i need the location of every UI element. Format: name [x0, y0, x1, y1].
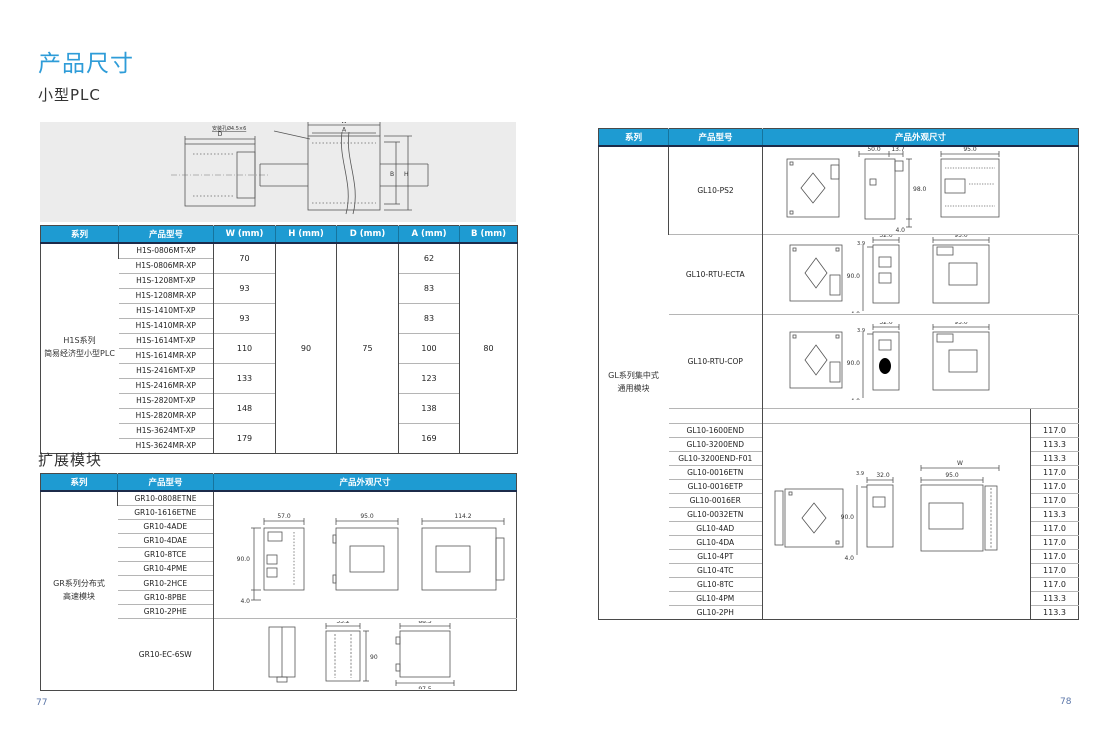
model-cell: H1S-0806MT-XP [119, 243, 214, 258]
value-cell: 90 [276, 243, 337, 453]
empty-cell [669, 408, 763, 423]
svg-text:50.0: 50.0 [867, 147, 881, 153]
column-header: W (mm) [214, 226, 276, 244]
column-header: 系列 [41, 474, 118, 492]
svg-text:3.9: 3.9 [857, 241, 865, 247]
dim-label-d: D [218, 131, 223, 138]
model-cell: GL10-PS2 [669, 146, 763, 234]
model-cell: GL10-0016ER [669, 493, 763, 507]
svg-text:114.2: 114.2 [454, 513, 471, 520]
svg-text:4.0: 4.0 [850, 398, 860, 400]
svg-text:13.7: 13.7 [891, 147, 905, 153]
catalog-page: { "page": { "title": "产品尺寸", "section_sm… [0, 0, 1107, 744]
value-cell: 117.0 [1031, 563, 1079, 577]
value-cell: 117.0 [1031, 465, 1079, 479]
svg-text:4.0: 4.0 [240, 598, 250, 605]
model-cell: H1S-2820MT-XP [119, 393, 214, 408]
gl-common-module-drawing: 3.9 32.0 90.0 4.0 W [769, 437, 1025, 605]
page-number-right: 78 [1060, 697, 1071, 707]
value-cell: 138 [399, 393, 460, 423]
column-header: 产品外观尺寸 [214, 474, 517, 492]
model-cell: H1S-1410MT-XP [119, 303, 214, 318]
svg-text:57.0: 57.0 [277, 513, 291, 520]
svg-text:32.0: 32.0 [876, 472, 890, 479]
model-cell: H1S-3624MR-XP [119, 438, 214, 453]
svg-text:4.0: 4.0 [850, 311, 860, 313]
section-title-small-plc: 小型PLC [38, 84, 101, 105]
plc-dimension-drawing: D W A B H [40, 122, 516, 222]
model-cell: GR10-4ADE [118, 519, 214, 533]
value-cell: 133 [214, 363, 276, 393]
model-cell: H1S-2416MT-XP [119, 363, 214, 378]
w-column-header: W (mm) [1031, 408, 1079, 423]
svg-text:4.0: 4.0 [895, 227, 905, 233]
svg-text:95.0: 95.0 [945, 472, 959, 479]
svg-text:4.0: 4.0 [844, 555, 854, 562]
svg-text:95.0: 95.0 [360, 513, 374, 520]
svg-text:W: W [957, 460, 963, 467]
value-cell: 113.3 [1031, 507, 1079, 521]
value-cell: 117.0 [1031, 577, 1079, 591]
gl-module-table: 系列 产品型号 产品外观尺寸 GL系列集中式通用模块 GL10-PS2 [598, 128, 1079, 620]
model-cell: GR10-2HCE [118, 576, 214, 590]
value-cell: 80 [460, 243, 518, 453]
model-cell: H1S-3624MT-XP [119, 423, 214, 438]
gr-switch-drawing: 53.2 90 88.5 [214, 621, 516, 689]
table-row: H1S系列简易经济型小型PLC H1S-0806MT-XP 70 90 75 6… [41, 243, 518, 258]
model-cell: GR10-0808ETNE [118, 491, 214, 505]
svg-text:90.0: 90.0 [237, 556, 251, 563]
model-cell: GL10-2PH [669, 605, 763, 619]
column-header: D (mm) [337, 226, 399, 244]
value-cell: 148 [214, 393, 276, 423]
value-cell: 117.0 [1031, 479, 1079, 493]
plc-dimensions-table: 系列 产品型号 W (mm) H (mm) D (mm) A (mm) B (m… [40, 225, 518, 454]
value-cell: 117.0 [1031, 549, 1079, 563]
model-cell: GL10-4AD [669, 521, 763, 535]
table-header-row: 系列 产品型号 W (mm) H (mm) D (mm) A (mm) B (m… [41, 226, 518, 244]
svg-text:3.9: 3.9 [856, 471, 864, 477]
column-header: H (mm) [276, 226, 337, 244]
value-cell: 179 [214, 423, 276, 453]
table-header-row: 系列 产品型号 产品外观尺寸 [599, 129, 1079, 147]
model-cell: GR10-8TCE [118, 548, 214, 562]
model-cell: H1S-1410MR-XP [119, 318, 214, 333]
value-cell: 100 [399, 333, 460, 363]
value-cell: 117.0 [1031, 423, 1079, 437]
model-cell: GR10-EC-6SW [118, 619, 214, 691]
model-cell: GL10-4PT [669, 549, 763, 563]
value-cell: 117.0 [1031, 521, 1079, 535]
svg-text:97.5: 97.5 [418, 686, 432, 689]
value-cell: 113.3 [1031, 605, 1079, 619]
value-cell: 93 [214, 303, 276, 333]
model-cell: GL10-4TC [669, 563, 763, 577]
model-cell: GR10-4PME [118, 562, 214, 576]
model-cell: GR10-1616ETNE [118, 505, 214, 519]
dim-label-b: B [390, 171, 394, 178]
model-cell: GL10-3200END-F01 [669, 451, 763, 465]
table-row: GL系列集中式通用模块 GL10-PS2 50.0 13.7 [599, 146, 1079, 234]
model-cell: GL10-4PM [669, 591, 763, 605]
model-cell: H1S-1614MR-XP [119, 348, 214, 363]
svg-text:88.5: 88.5 [418, 621, 432, 625]
model-cell: GL10-3200END [669, 437, 763, 451]
svg-text:32.0: 32.0 [879, 235, 893, 239]
column-header: A (mm) [399, 226, 460, 244]
column-header: 产品型号 [669, 129, 763, 147]
value-cell: 83 [399, 273, 460, 303]
expansion-module-table: 系列 产品型号 产品外观尺寸 GR系列分布式高速模块 GR10-0808ETNE… [40, 473, 517, 691]
model-cell: GL10-8TC [669, 577, 763, 591]
section-title-expansion: 扩展模块 [38, 449, 102, 470]
dim-label-w: W [341, 122, 347, 125]
svg-text:32.0: 32.0 [879, 322, 893, 326]
outline-drawing-cell: 57.0 90.0 4.0 95.0 [214, 491, 517, 619]
table-row: GL10-1600END 3.9 32.0 [599, 423, 1079, 437]
svg-text:95.0: 95.0 [963, 147, 977, 153]
series-cell: H1S系列简易经济型小型PLC [41, 243, 119, 453]
value-cell: 123 [399, 363, 460, 393]
series-cell: GL系列集中式通用模块 [599, 146, 669, 619]
svg-text:98.0: 98.0 [913, 186, 927, 193]
svg-text:90.0: 90.0 [840, 514, 854, 521]
model-cell: GL10-1600END [669, 423, 763, 437]
model-cell: GL10-4DA [669, 535, 763, 549]
svg-text:95.0: 95.0 [954, 235, 968, 239]
value-cell: 75 [337, 243, 399, 453]
column-header: 系列 [599, 129, 669, 147]
gl-rtu-ecta-drawing: 3.9 32.0 90.0 4.0 95.0 [765, 235, 1077, 313]
model-cell: GL10-0016ETP [669, 479, 763, 493]
dim-label-h: H [404, 171, 409, 178]
value-cell: 70 [214, 243, 276, 273]
outline-drawing-cell: 50.0 13.7 98.0 4.0 95.0 [763, 146, 1079, 234]
dim-label-a: A [342, 127, 347, 134]
svg-text:90.0: 90.0 [846, 360, 860, 367]
model-cell: GR10-2PHE [118, 604, 214, 618]
series-cell: GR系列分布式高速模块 [41, 491, 118, 691]
value-cell: 113.3 [1031, 451, 1079, 465]
model-cell: H1S-1614MT-XP [119, 333, 214, 348]
value-cell: 117.0 [1031, 493, 1079, 507]
model-cell: GL10-RTU-COP [669, 314, 763, 408]
model-cell: H1S-1208MT-XP [119, 273, 214, 288]
value-cell: 113.3 [1031, 591, 1079, 605]
value-cell: 113.3 [1031, 437, 1079, 451]
model-cell: GL10-RTU-ECTA [669, 234, 763, 314]
model-cell: GR10-4DAE [118, 533, 214, 547]
gr-module-drawing: 57.0 90.0 4.0 95.0 [214, 492, 516, 618]
value-cell: 169 [399, 423, 460, 453]
value-cell: 93 [214, 273, 276, 303]
svg-text:53.2: 53.2 [336, 621, 350, 625]
gl-rtu-cop-drawing: 3.9 32.0 90.0 4.0 [765, 322, 1077, 400]
table-row: GL10-RTU-COP 3.9 32.0 [599, 314, 1079, 408]
value-cell: 62 [399, 243, 460, 273]
outline-drawing-cell: 53.2 90 88.5 [214, 619, 517, 691]
table-header-row: 系列 产品型号 产品外观尺寸 [41, 474, 517, 492]
subheader-band [763, 408, 1031, 423]
model-cell: H1S-2416MR-XP [119, 378, 214, 393]
model-cell: H1S-0806MR-XP [119, 258, 214, 273]
plc-dimension-diagram-panel: D W A B H [40, 122, 516, 222]
outline-drawing-cell: 3.9 32.0 90.0 4.0 [763, 314, 1079, 408]
model-cell: GL10-0016ETN [669, 465, 763, 479]
column-header: 产品型号 [118, 474, 214, 492]
svg-text:3.9: 3.9 [857, 328, 865, 334]
table-row: GR系列分布式高速模块 GR10-0808ETNE 57.0 9 [41, 491, 517, 505]
value-cell: 110 [214, 333, 276, 363]
svg-text:90: 90 [370, 654, 378, 661]
gl-ps2-drawing: 50.0 13.7 98.0 4.0 95.0 [765, 147, 1077, 233]
svg-text:90.0: 90.0 [846, 273, 860, 280]
page-title: 产品尺寸 [38, 44, 134, 78]
table-row: GL10-RTU-ECTA 3.9 32.0 [599, 234, 1079, 314]
column-header: B (mm) [460, 226, 518, 244]
page-number-left: 77 [36, 698, 47, 708]
svg-text:95.0: 95.0 [954, 322, 968, 326]
model-cell: GR10-8PBE [118, 590, 214, 604]
model-cell: H1S-1208MR-XP [119, 288, 214, 303]
value-cell: 117.0 [1031, 535, 1079, 549]
mount-hole-label: 安装孔Ø4.5×6 [212, 125, 246, 132]
value-cell: 83 [399, 303, 460, 333]
model-cell: GL10-0032ETN [669, 507, 763, 521]
model-cell: H1S-2820MR-XP [119, 408, 214, 423]
column-header: 产品外观尺寸 [763, 129, 1079, 147]
outline-drawing-cell: 3.9 32.0 90.0 4.0 95.0 [763, 234, 1079, 314]
column-header: 产品型号 [119, 226, 214, 244]
table-subheader-row: W (mm) [599, 408, 1079, 423]
column-header: 系列 [41, 226, 119, 244]
outline-drawing-cell: 3.9 32.0 90.0 4.0 W [763, 423, 1031, 619]
